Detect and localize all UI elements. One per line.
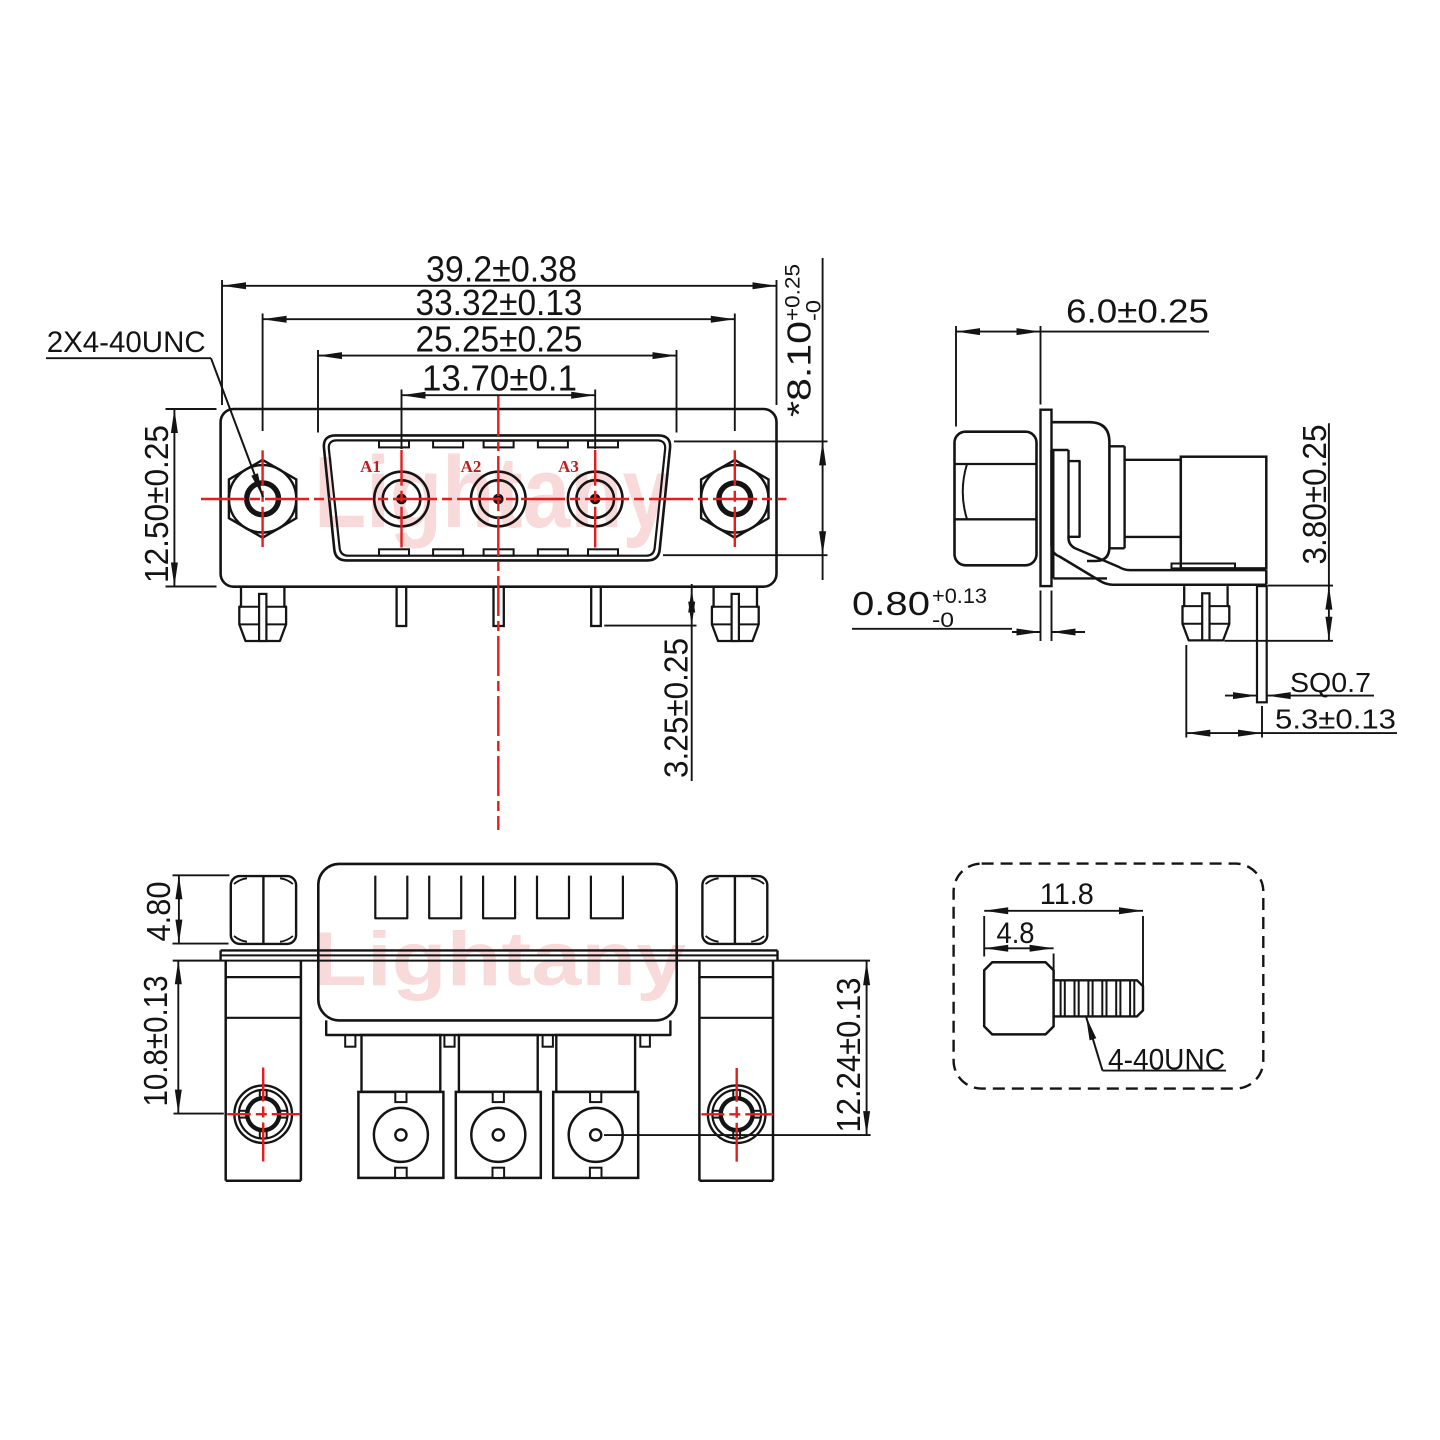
svg-text:A2: A2 bbox=[461, 457, 482, 476]
svg-text:2X4-40UNC: 2X4-40UNC bbox=[47, 326, 206, 359]
svg-text:-0: -0 bbox=[932, 609, 954, 632]
svg-text:0.80: 0.80 bbox=[852, 585, 930, 622]
svg-text:A1: A1 bbox=[360, 457, 381, 476]
svg-text:4-40UNC: 4-40UNC bbox=[1108, 1044, 1225, 1077]
svg-text:4.8: 4.8 bbox=[997, 917, 1035, 950]
svg-text:A3: A3 bbox=[558, 457, 579, 476]
svg-text:25.25±0.25: 25.25±0.25 bbox=[416, 319, 583, 360]
svg-text:3.25±0.25: 3.25±0.25 bbox=[658, 638, 695, 778]
svg-text:3.80±0.25: 3.80±0.25 bbox=[1296, 425, 1333, 565]
svg-text:4.80: 4.80 bbox=[140, 882, 177, 942]
svg-text:-0: -0 bbox=[803, 300, 826, 321]
svg-text:6.0±0.25: 6.0±0.25 bbox=[1066, 293, 1209, 330]
svg-text:*8.10: *8.10 bbox=[781, 321, 818, 417]
svg-text:10.8±0.13: 10.8±0.13 bbox=[137, 976, 174, 1107]
svg-text:13.70±0.1: 13.70±0.1 bbox=[422, 358, 577, 399]
svg-text:33.32±0.13: 33.32±0.13 bbox=[416, 282, 583, 323]
svg-text:Lightany: Lightany bbox=[314, 437, 670, 549]
svg-text:+0.13: +0.13 bbox=[932, 585, 987, 608]
svg-text:11.8: 11.8 bbox=[1040, 878, 1094, 911]
svg-text:12.50±0.25: 12.50±0.25 bbox=[138, 425, 175, 583]
svg-text:+0.25: +0.25 bbox=[782, 264, 805, 321]
svg-text:5.3±0.13: 5.3±0.13 bbox=[1275, 704, 1396, 735]
svg-text:Lightany: Lightany bbox=[312, 917, 686, 1002]
svg-text:12.24±0.13: 12.24±0.13 bbox=[830, 978, 867, 1133]
svg-text:SQ0.7: SQ0.7 bbox=[1290, 667, 1371, 698]
